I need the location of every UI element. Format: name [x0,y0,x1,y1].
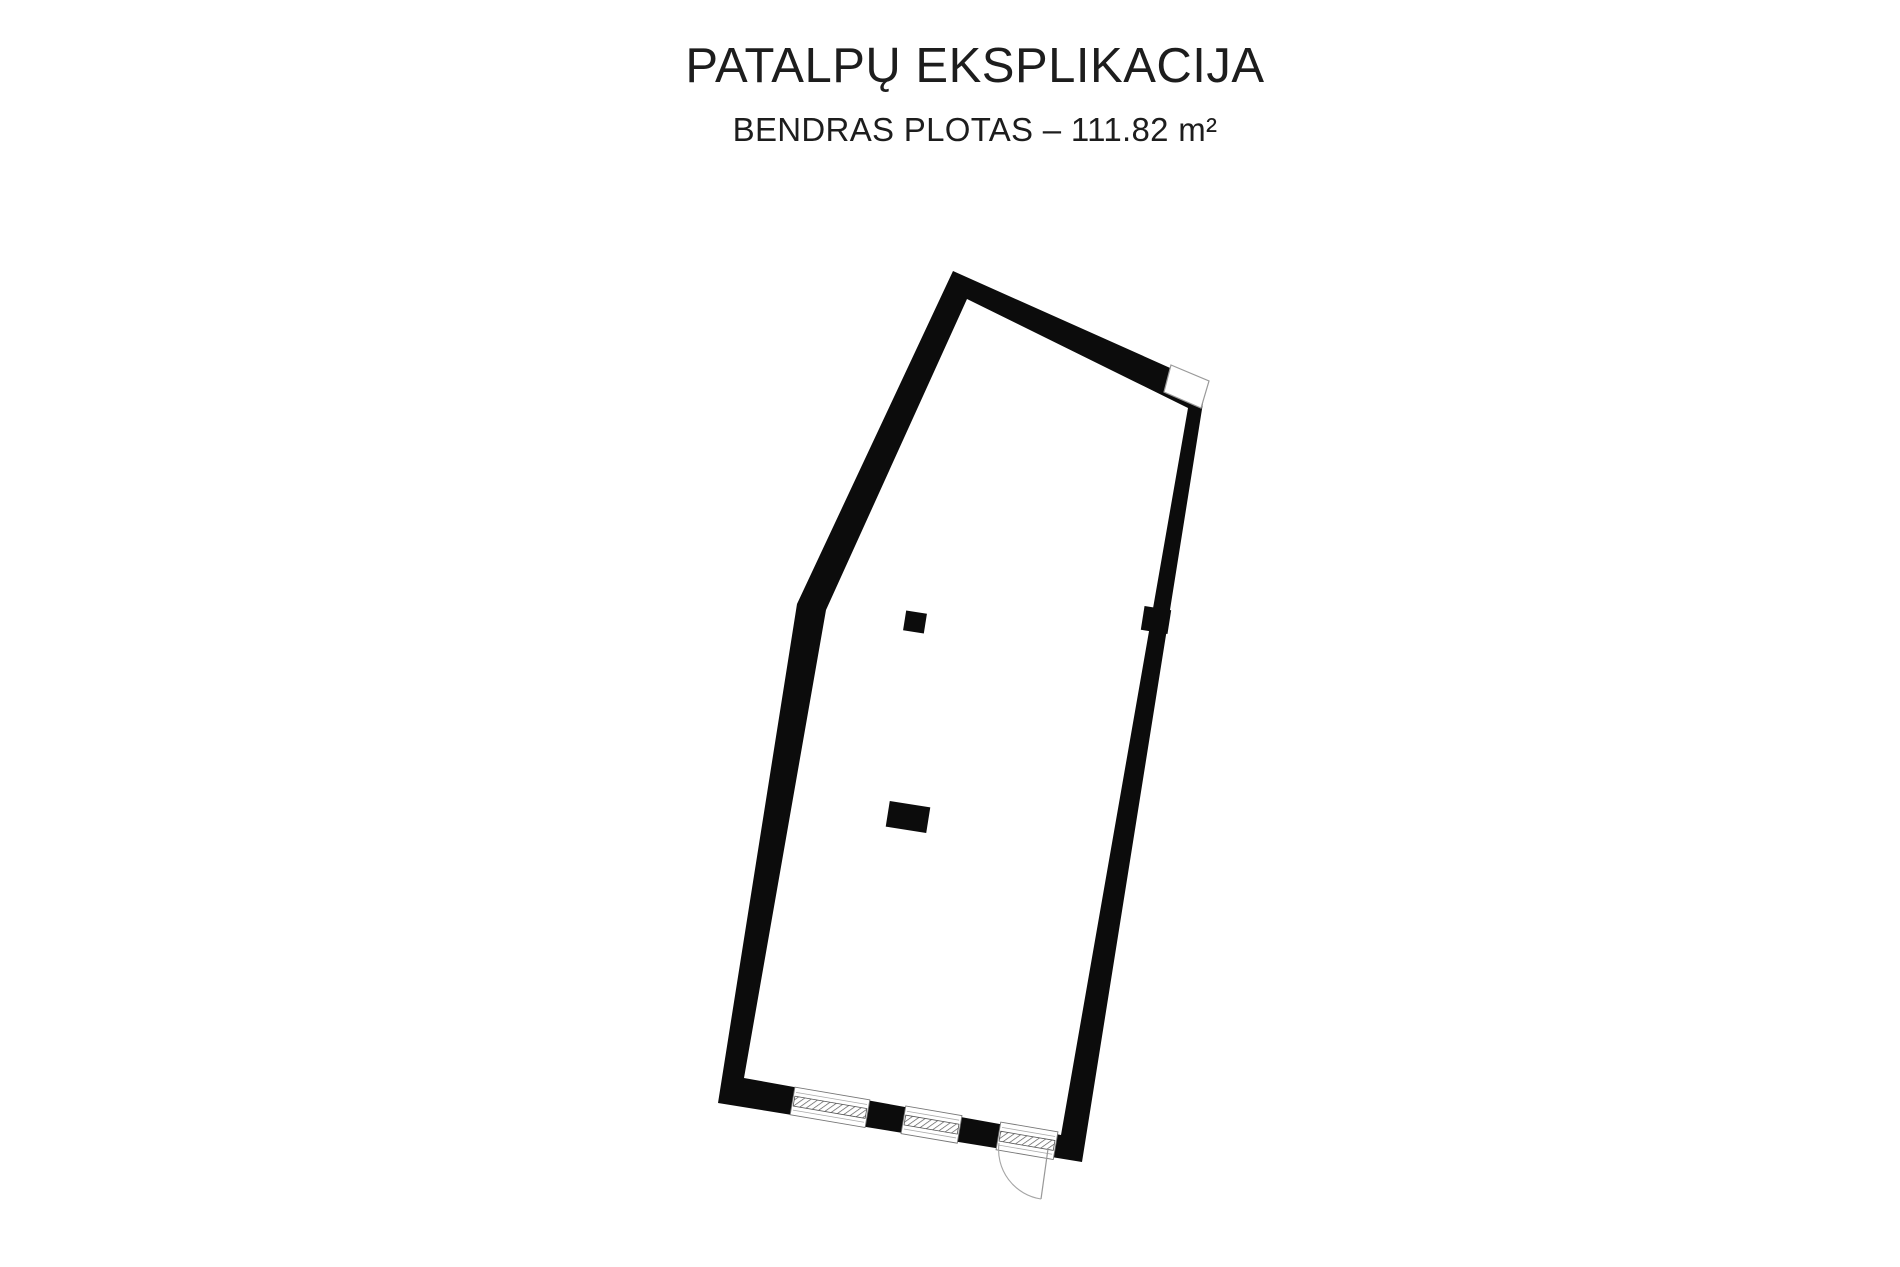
floor-plan-drawing [0,0,1900,1267]
door-transom [996,1122,1058,1159]
floor-plan-page: PATALPŲ EKSPLIKACIJA BENDRAS PLOTAS – 11… [0,0,1900,1267]
window-2 [901,1106,962,1143]
column-wide [886,801,931,833]
column-small [903,610,927,633]
wall-pilaster [1141,606,1171,634]
walls [718,271,1206,1162]
corner-window [1164,365,1209,408]
window-1 [790,1087,870,1127]
